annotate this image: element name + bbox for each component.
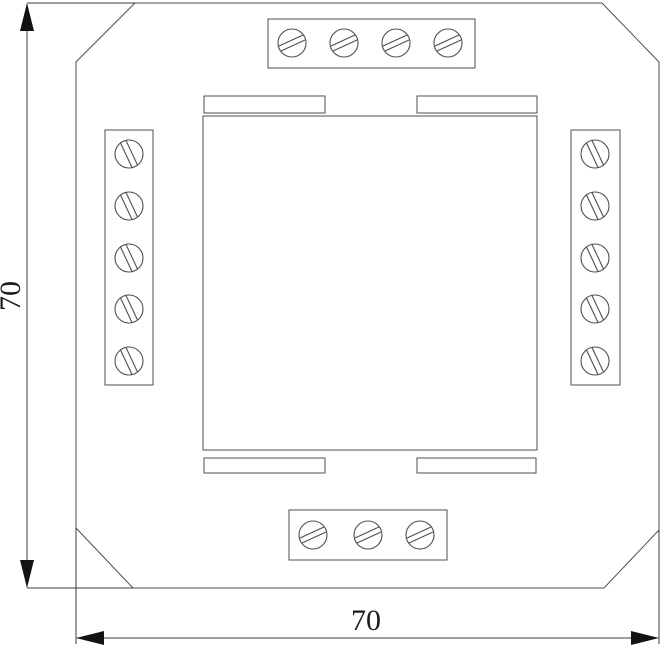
screw-icon [382,29,410,57]
screw-icon [115,192,143,220]
height-dimension-label: 70 [0,281,27,311]
terminal-block-top [268,19,475,68]
terminal-block-left [105,130,153,385]
width-dimension-label: 70 [351,604,381,637]
screw-icon [581,244,609,272]
terminal-block-top-outline [268,19,475,68]
width-dimension: 70 [76,528,659,645]
screw-icon [115,295,143,323]
technical-drawing: 70 70 [0,0,665,650]
screw-icon [278,29,306,57]
module-body-outline [76,3,659,588]
terminal-block-bottom [289,510,447,560]
screw-icon [581,140,609,168]
drawing-svg: 70 70 [0,0,665,650]
screw-icon [115,244,143,272]
slot-top-left [204,96,325,113]
screw-icon [354,521,382,549]
arrow-up-icon [20,3,34,31]
slot-bottom-left [204,458,325,473]
arrow-right-icon [631,631,659,645]
terminal-block-bottom-outline [289,510,447,560]
screw-icon [581,192,609,220]
screw-icon [406,521,434,549]
screw-icon [115,140,143,168]
arrow-down-icon [20,560,34,588]
slot-top-right [417,96,537,113]
center-cover-square [203,116,537,450]
terminal-block-right [571,130,620,385]
screw-icon [581,295,609,323]
screw-icon [434,29,462,57]
screw-icon [330,29,358,57]
screw-icon [299,521,327,549]
screw-icon [115,347,143,375]
slot-bottom-right [417,458,536,473]
height-dimension: 70 [0,3,135,588]
arrow-left-icon [76,631,104,645]
screw-icon [581,347,609,375]
